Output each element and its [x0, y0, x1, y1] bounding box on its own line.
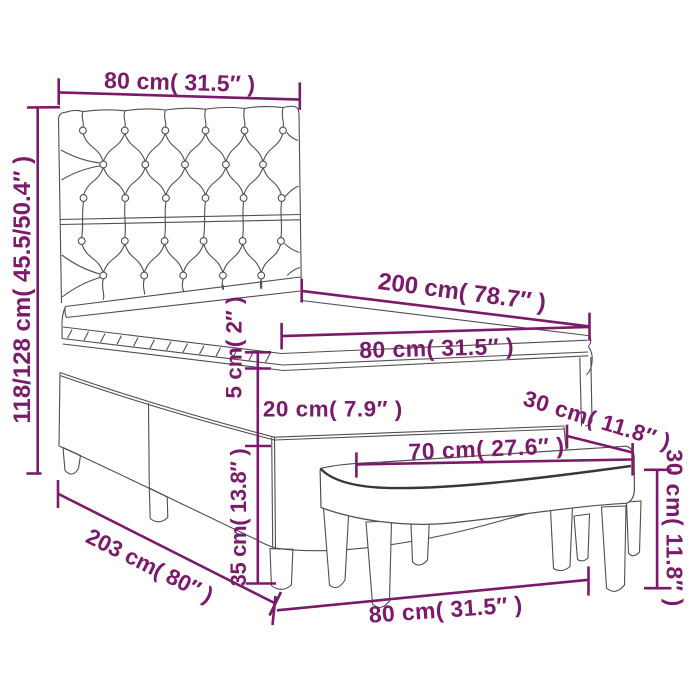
svg-text:20 cm( 7.9″ ): 20 cm( 7.9″ )	[263, 397, 403, 422]
svg-text:35 cm( 13.8″ ): 35 cm( 13.8″ )	[226, 449, 251, 587]
svg-text:80 cm( 31.5″ ): 80 cm( 31.5″ )	[359, 333, 514, 363]
svg-text:30 cm( 11.8″ ): 30 cm( 11.8″ )	[662, 449, 688, 607]
svg-text:5 cm( 2″ ): 5 cm( 2″ )	[222, 296, 247, 398]
svg-text:118/128 cm( 45.5/50.4″ ): 118/128 cm( 45.5/50.4″ )	[9, 156, 36, 424]
svg-text:80 cm( 31.5″ ): 80 cm( 31.5″ )	[104, 67, 256, 97]
